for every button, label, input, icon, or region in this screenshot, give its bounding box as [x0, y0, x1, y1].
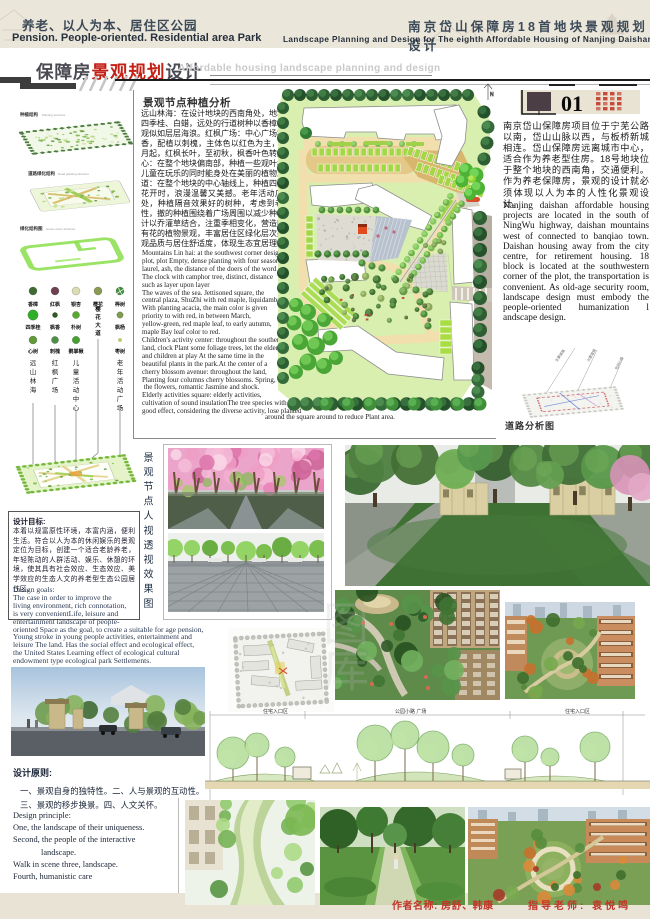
- svg-text:Road planting structure: Road planting structure: [58, 172, 89, 176]
- svg-text:道路绿化结构: 道路绿化结构: [28, 170, 55, 177]
- svg-text:种植结构: 种植结构: [19, 111, 38, 118]
- svg-text:01: 01: [561, 91, 583, 116]
- svg-text:宅间小路: 宅间小路: [613, 355, 624, 370]
- svg-text:Green vision structure: Green vision structure: [46, 227, 76, 231]
- svg-text:住宅入口区: 住宅入口区: [263, 708, 288, 715]
- svg-text:Planting structure: Planting structure: [42, 113, 66, 117]
- svg-text:住宅入口区: 住宅入口区: [565, 708, 590, 715]
- svg-text:N: N: [490, 92, 494, 98]
- svg-text:绿化结构图: 绿化结构图: [20, 225, 43, 232]
- svg-text:次要道路: 次要道路: [586, 347, 598, 362]
- svg-text:公园小路 广场: 公园小路 广场: [395, 708, 426, 715]
- svg-text:主要道路: 主要道路: [554, 348, 566, 363]
